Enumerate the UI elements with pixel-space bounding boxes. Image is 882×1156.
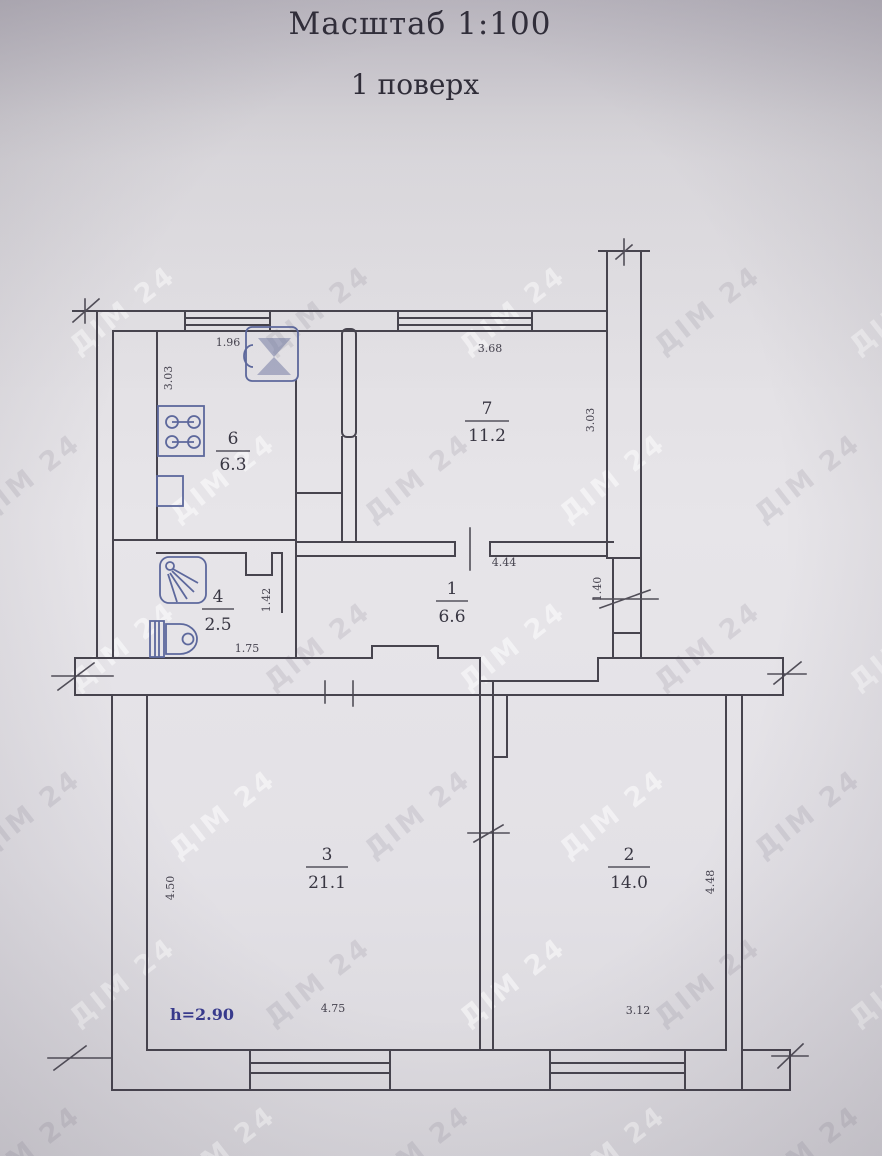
- dim-room2-bottom: 3.12: [626, 1004, 651, 1017]
- page-title: Масштаб 1:100: [0, 6, 840, 42]
- room-6-area: 6.3: [219, 455, 246, 475]
- outer-walls-lower: [112, 695, 790, 1090]
- wall-shaft-room7: [342, 329, 356, 437]
- dim-room4-bottom: 1.75: [235, 642, 260, 655]
- room-2-area: 14.0: [610, 873, 648, 893]
- room-4-number: 4: [213, 587, 224, 607]
- dim-room6-top: 1.96: [216, 336, 241, 349]
- shower-icon: [160, 557, 206, 603]
- stove-icon: [158, 406, 204, 456]
- dim-room2-right: 4.48: [704, 870, 717, 895]
- dim-room3-bottom: 4.75: [321, 1002, 346, 1015]
- room-7-area: 11.2: [468, 426, 506, 446]
- ceiling-height-note: h=2.90: [170, 1005, 234, 1024]
- wall-divider-rooms-2-3: [480, 681, 507, 1050]
- sink-icon: [244, 327, 298, 381]
- dim-room4-right: 1.42: [260, 588, 273, 613]
- survey-ticks: [48, 239, 808, 1070]
- room-3-number: 3: [322, 845, 333, 865]
- room-2-number: 2: [624, 845, 635, 865]
- floor-plan-page: ДІМ 24ДІМ 24ДІМ 24ДІМ 24ДІМ 24ДІМ 24ДІМ …: [0, 0, 882, 1156]
- room-4-area: 2.5: [204, 615, 231, 635]
- dim-room7-right: 3.03: [584, 408, 597, 433]
- outer-walls-upper: [73, 251, 649, 658]
- room-3-area: 21.1: [308, 873, 346, 893]
- room-7-number: 7: [482, 399, 493, 419]
- wall-corridor-top: [296, 542, 613, 556]
- dim-room6-left: 3.03: [162, 366, 175, 391]
- window-room7: [398, 311, 532, 331]
- window-room3: [250, 1050, 390, 1090]
- dim-room1-right: 1.40: [591, 577, 604, 602]
- room-6-number: 6: [228, 429, 239, 449]
- room-1-area: 6.6: [438, 607, 465, 627]
- window-kitchen: [185, 311, 270, 331]
- room-1-number: 1: [447, 579, 458, 599]
- wall-room7-left-lower: [342, 437, 356, 542]
- toilet-icon: [150, 621, 197, 657]
- dim-room1-top: 4.44: [492, 556, 517, 569]
- dim-room3-left: 4.50: [164, 876, 177, 901]
- dim-room7-top: 3.68: [478, 342, 503, 355]
- floor-plan-drawing: 7 11.2 3.68 3.03 6 6.3 1.96 3.03 1 6.6 4…: [0, 0, 882, 1156]
- floor-label: 1 поверх: [0, 68, 830, 101]
- counter-icon: [157, 476, 183, 506]
- labels-layer: 7 11.2 3.68 3.03 6 6.3 1.96 3.03 1 6.6 4…: [162, 336, 717, 1024]
- window-room2: [550, 1050, 685, 1090]
